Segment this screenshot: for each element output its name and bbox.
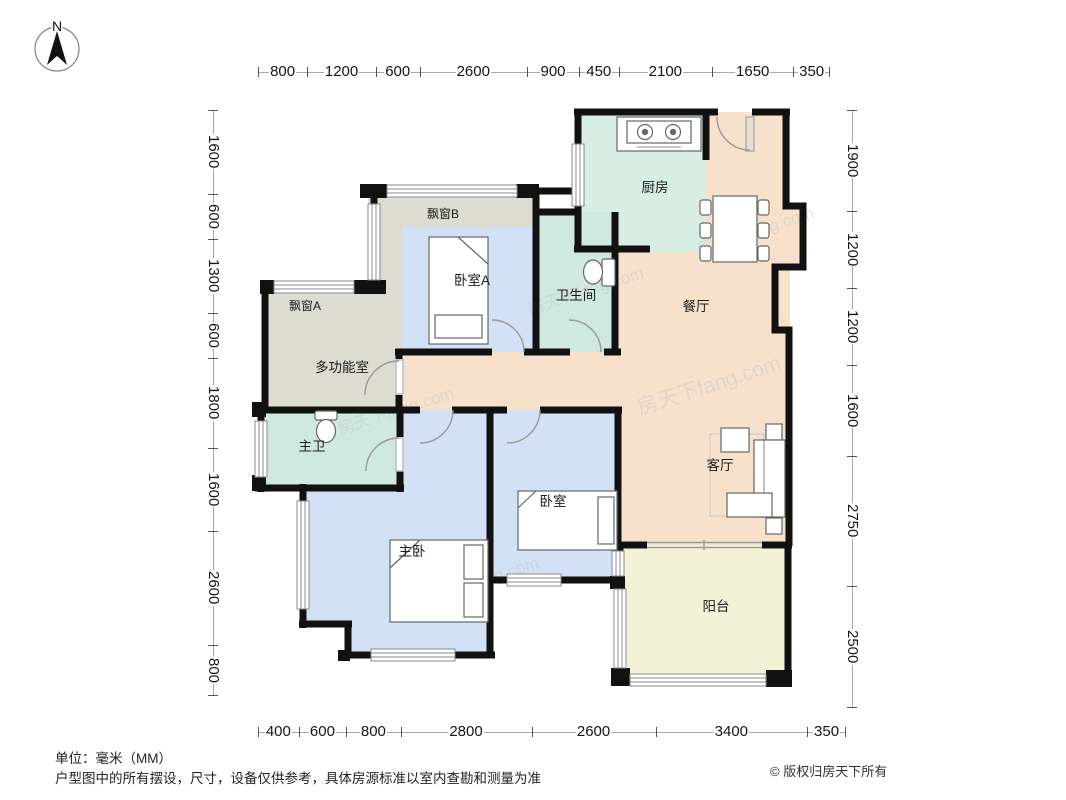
dimension-segment: 2600	[202, 531, 224, 645]
bed-bedroom	[518, 491, 617, 550]
coffee-table	[727, 493, 772, 517]
dimension-segment: 350	[807, 722, 846, 742]
dimension-column-right: 1900 1200 1200 1600 2750 2500	[841, 110, 863, 708]
label-kitchen: 厨房	[642, 180, 669, 195]
window-master-bedroom-left	[297, 501, 309, 609]
room-multi-function	[262, 286, 402, 412]
dimension-segment: 1200	[307, 62, 376, 82]
window-master-bath-left	[255, 421, 267, 477]
dimension-segment: 1650	[712, 62, 793, 82]
dimension-segment: 1600	[841, 365, 863, 456]
dimension-column-left: 1600 600 1300 600 1800 1600 2600 800	[202, 110, 224, 696]
window-bedroom-bottom	[507, 574, 561, 586]
dimension-segment: 2750	[841, 456, 863, 587]
tv-icon	[721, 428, 749, 452]
floorplan-canvas: N 房天下fang.com 房天下fang.com 房天下fang.com 房天…	[0, 0, 1066, 800]
dimension-segment: 2600	[420, 62, 527, 82]
dimension-segment: 600	[376, 62, 420, 82]
dimension-row-top: 800 1200 600 2600 900 450 2100 1650 350	[258, 62, 830, 82]
room-balcony	[620, 545, 790, 685]
dimension-segment: 800	[346, 722, 400, 742]
window-bay-b-left	[368, 204, 380, 280]
disclaimer-note: 户型图中的所有摆设，尺寸，设备仅供参考，具体房源标准以室内查勘和测量为准	[55, 767, 541, 787]
dimension-segment: 800	[258, 62, 307, 82]
window-bedroom-right	[612, 551, 624, 576]
dimension-segment: 450	[579, 62, 619, 82]
dimension-segment: 1200	[841, 211, 863, 288]
window-master-bedroom-bottom	[371, 649, 455, 661]
dimension-segment: 400	[258, 722, 299, 742]
dimension-segment: 800	[202, 645, 224, 696]
unit-note: 单位：毫米（MM）	[55, 747, 172, 767]
stove-icon	[617, 117, 701, 151]
label-bedroom-a: 卧室A	[454, 272, 490, 288]
floorplan-page: N 房天下fang.com 房天下fang.com 房天下fang.com 房天…	[0, 0, 1066, 800]
dimension-segment: 2100	[619, 62, 713, 82]
dimension-row-bottom: 400 600 800 2800 2600 3400 350	[258, 722, 846, 742]
window-balcony-left	[614, 589, 626, 668]
window-bay-a-top	[274, 281, 354, 293]
north-compass: N	[35, 18, 79, 71]
dining-table	[700, 196, 769, 262]
dimension-segment: 600	[202, 313, 224, 358]
label-dining: 餐厅	[683, 299, 710, 314]
label-balcony: 阳台	[703, 599, 730, 614]
window-bay-b-top	[387, 185, 517, 197]
label-bathroom: 卫生间	[556, 288, 597, 303]
dimension-segment: 1900	[841, 110, 863, 211]
dimension-segment: 1200	[841, 288, 863, 365]
dimension-segment: 600	[202, 194, 224, 239]
label-bay-window-a: 飘窗A	[289, 299, 321, 313]
dimension-segment: 1600	[202, 110, 224, 194]
dimension-segment: 2500	[841, 586, 863, 708]
label-master-bedroom: 主卧	[399, 544, 426, 559]
bed-bedroom-a	[429, 237, 488, 344]
dimension-segment: 2800	[401, 722, 532, 742]
dimension-segment: 2600	[532, 722, 656, 742]
dimension-segment: 1600	[202, 448, 224, 532]
toilet-icon	[315, 411, 337, 443]
compass-north-label: N	[52, 18, 62, 34]
label-master-bath: 主卫	[299, 439, 326, 454]
label-living: 客厅	[707, 457, 734, 473]
label-bay-window-b: 飘窗B	[427, 207, 459, 221]
window-balcony-bottom	[630, 674, 766, 686]
label-bedroom: 卧室	[540, 493, 567, 509]
dimension-segment: 900	[527, 62, 579, 82]
label-multi-room: 多功能室	[315, 359, 369, 375]
dimension-segment: 3400	[656, 722, 807, 742]
copyright-note: © 版权归房天下所有	[770, 761, 887, 780]
dimension-segment: 350	[793, 62, 830, 82]
dimension-segment: 600	[299, 722, 347, 742]
dimension-segment: 1300	[202, 239, 224, 314]
dimension-segment: 1800	[202, 358, 224, 448]
window-kitchen-left	[572, 144, 584, 206]
north-arrow-icon	[47, 31, 67, 65]
